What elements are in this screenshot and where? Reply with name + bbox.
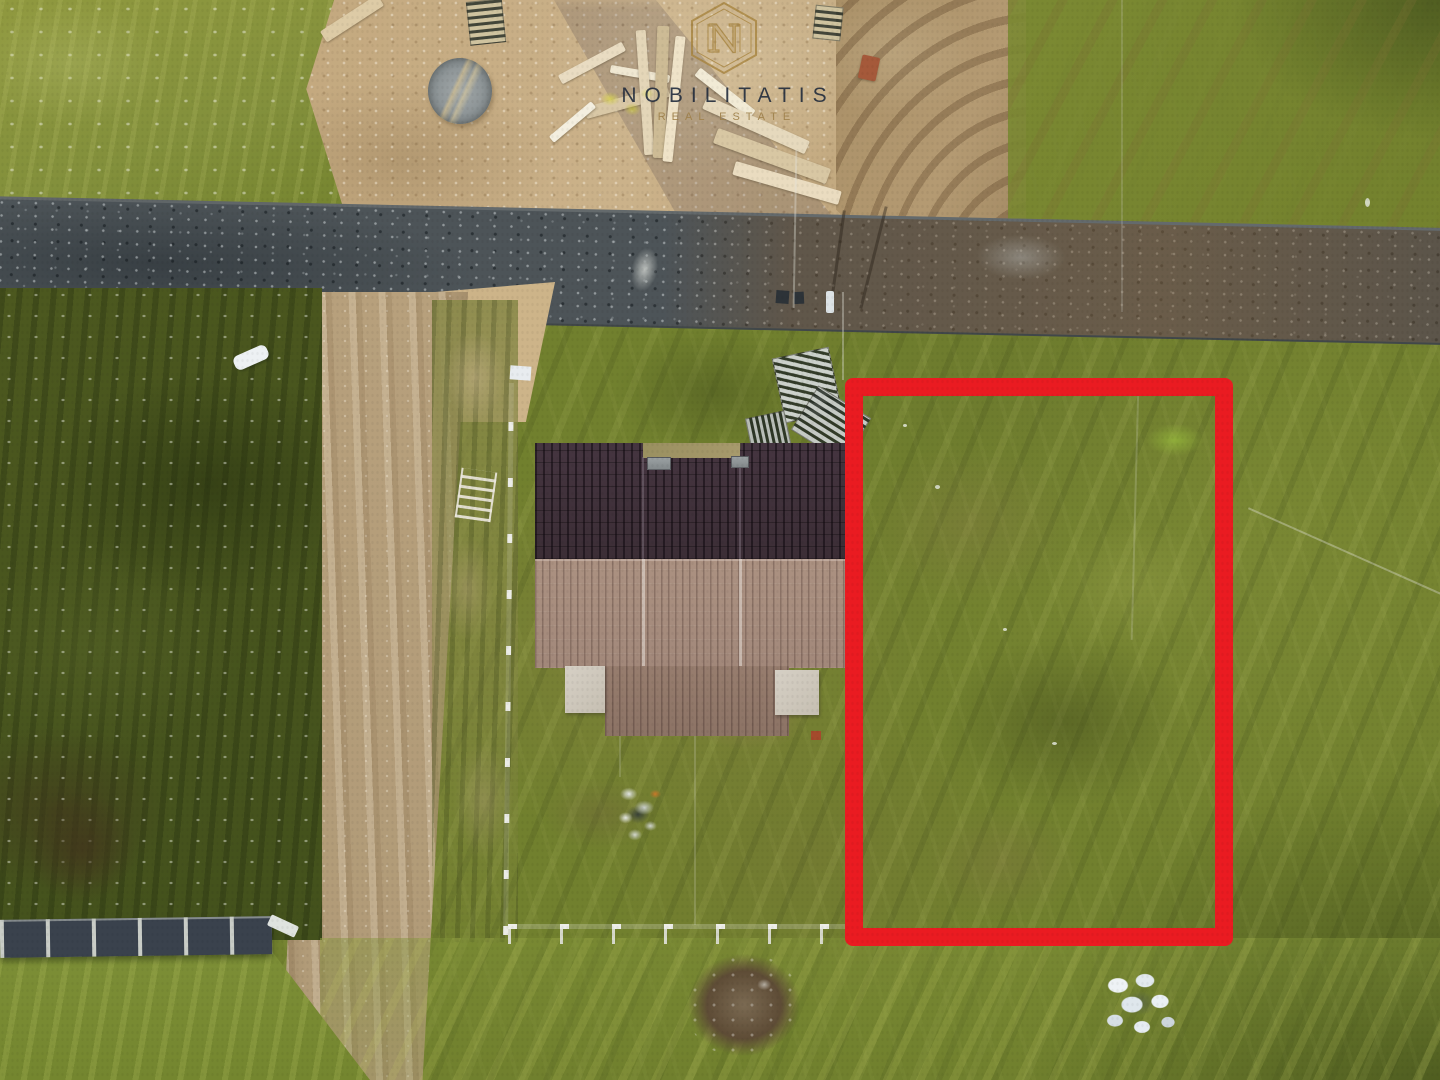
roof-seam: [739, 559, 742, 666]
utility-wire: [1121, 0, 1123, 312]
roof-north-slope: [535, 443, 845, 559]
bottom-grass-strip: [320, 938, 1440, 1080]
roof-vent: [647, 457, 671, 470]
roadside-marker: [826, 291, 834, 313]
roof-vent: [731, 456, 749, 468]
roof-seam: [642, 559, 645, 666]
yard-post-line: [694, 735, 696, 925]
roof-recess: [643, 443, 740, 458]
roof-seam: [642, 457, 644, 559]
porch-roof: [605, 666, 789, 736]
brick-pile: [811, 731, 821, 740]
road-light-patch: [975, 234, 1066, 281]
roof-south-slope: [535, 559, 845, 668]
wooden-pallet: [812, 5, 843, 42]
aerial-photo-scene: N NOBILITATIS REAL ESTATE: [0, 0, 1440, 1080]
small-white-sign: [510, 365, 532, 380]
yellow-debris: [588, 78, 662, 130]
wooden-grate: [455, 468, 498, 523]
dark-shrub-patch: [28, 792, 136, 904]
debris-pile: [607, 777, 669, 845]
concrete-circle-pad: [428, 58, 492, 124]
roof-seam: [739, 457, 741, 559]
tiled-roof-house: [535, 443, 845, 735]
concrete-terrace: [775, 670, 819, 715]
road-pothole: [628, 245, 662, 293]
grass-top-right: [1008, 0, 1440, 248]
fence-posts: [508, 929, 848, 944]
grass-top-left: [0, 0, 348, 212]
utility-pole: [842, 292, 844, 380]
plot-boundary-highlight: [845, 378, 1233, 946]
concrete-terrace: [565, 666, 605, 713]
ground-speck: [1365, 198, 1370, 207]
dark-panel-wall: [0, 916, 272, 958]
wooden-pallet: [466, 0, 506, 46]
white-sack-pile: [1090, 963, 1190, 1043]
yard-post-line: [619, 735, 621, 777]
